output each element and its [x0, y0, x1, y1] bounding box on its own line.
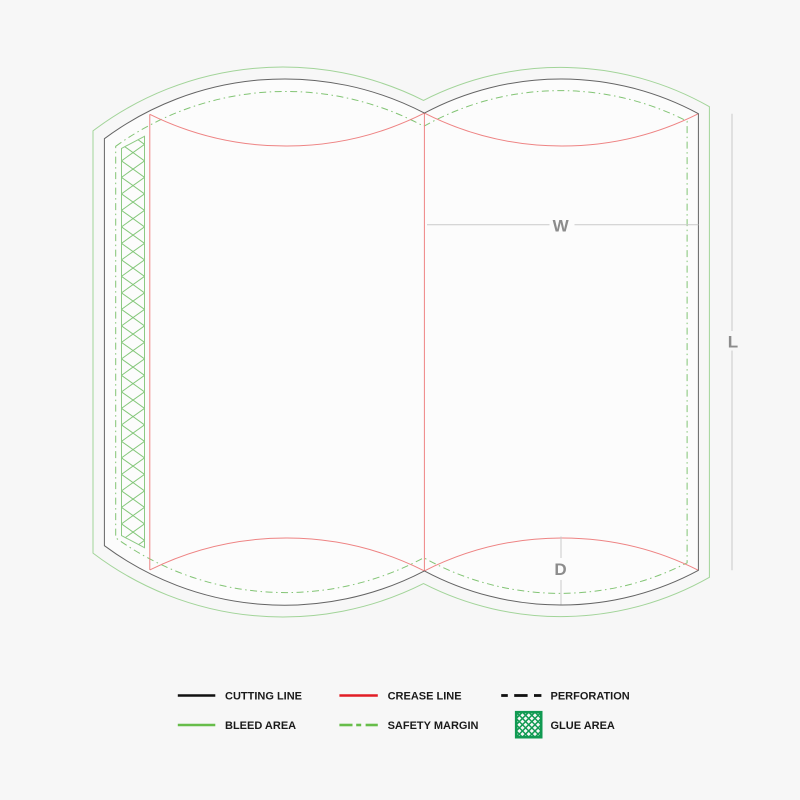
svg-text:PERFORATION: PERFORATION [551, 691, 630, 703]
svg-text:SAFETY MARGIN: SAFETY MARGIN [388, 720, 479, 732]
svg-text:W: W [553, 217, 570, 236]
svg-text:BLEED AREA: BLEED AREA [225, 720, 296, 732]
svg-text:GLUE AREA: GLUE AREA [551, 720, 615, 732]
svg-text:L: L [728, 333, 738, 352]
svg-text:CREASE LINE: CREASE LINE [388, 691, 462, 703]
svg-text:CUTTING LINE: CUTTING LINE [225, 691, 302, 703]
svg-text:D: D [554, 560, 566, 579]
